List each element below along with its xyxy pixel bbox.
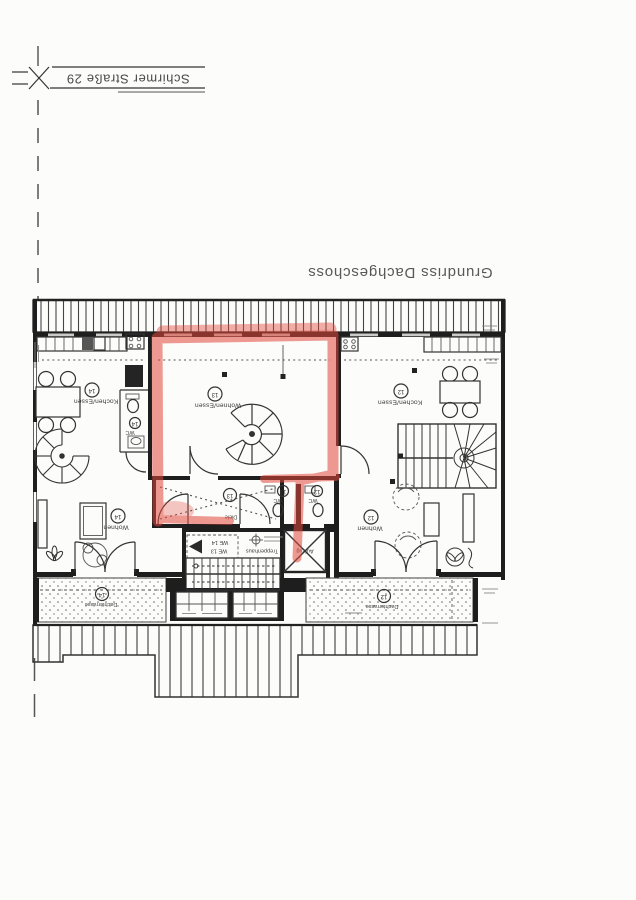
svg-text:Dachterrasse: Dachterrasse [366,603,399,609]
spiral-stair-13 [226,404,282,464]
stair-flights [186,558,280,590]
wohnen12-furniture [393,484,474,568]
apartment-14: 14 Kochen/Essen 14 [35,334,146,577]
svg-text:Kochen/Essen: Kochen/Essen [74,397,119,404]
svg-text:13: 13 [211,391,218,397]
skylight-b [233,592,278,618]
direction-arrow [189,540,202,554]
svg-text:Dachterrasse: Dachterrasse [85,601,118,607]
svg-text:13: 13 [279,488,286,494]
svg-text:14: 14 [114,513,121,519]
svg-text:Kochen/Essen: Kochen/Essen [378,398,423,405]
svg-text:WC: WC [308,497,317,503]
terrace-doors-14 [71,542,139,577]
skylight-a [176,592,228,618]
floor-plan: 14 Kochen/Essen 14 [33,300,505,697]
flower-symbol [45,546,64,562]
west-windows [34,362,37,522]
street-banner: Schirmer Straße 29 [12,46,205,92]
room-label-wohnen-14: 14 Wohnen [103,509,128,530]
terrace-doors-12 [371,541,441,577]
svg-text:Wohnen: Wohnen [103,523,128,530]
stove-12 [341,337,358,351]
unit-label-we13: WE 13 [211,548,228,554]
roof-hatch-bottom [33,625,477,697]
terrace-12: 12 Dachterrasse [306,578,473,622]
svg-text:13: 13 [226,492,233,498]
svg-text:Wohnen/Essen: Wohnen/Essen [195,401,242,408]
room-label-wohnen-essen-13: 13 Wohnen/Essen [195,387,242,408]
door-arc [126,452,146,472]
svg-text:14: 14 [98,591,105,597]
svg-text:Wohnen: Wohnen [357,524,382,531]
wc12-room: 12 WC [305,486,323,517]
scanned-floor-plan-page: Schirmer Straße 29 Grundriss Dachgeschos… [0,0,636,900]
winder-stair-12 [390,424,496,488]
apartment-13: 13 Wohnen/Essen [190,345,286,474]
stair-label: Treppenhaus [246,548,278,554]
svg-text:WC: WC [125,429,134,435]
dining-set-12 [440,367,480,418]
elevator: Aufzug [284,530,326,572]
room-label-wc-14: 14 WC [125,418,140,436]
wohnen14-furniture [38,500,107,567]
dining-set-14 [36,372,80,433]
fridge-14 [125,365,143,387]
wc13-room: 13 WC [265,486,289,517]
plan-title: Grundriss Dachgeschoss [307,264,492,281]
flower-symbol [446,548,473,568]
door-arc [341,446,369,474]
floor-plan-svg: Schirmer Straße 29 Grundriss Dachgeschos… [0,0,636,900]
svg-text:14: 14 [88,387,95,393]
small-post [222,372,227,377]
apartment-12: 12 Kochen/Essen [336,337,501,577]
svg-text:12: 12 [367,514,374,520]
street-label: Schirmer Straße 29 [66,72,190,87]
unit-label-we14: WE 14 [212,539,229,545]
svg-text:14: 14 [131,420,138,426]
terrace-14: 14 Dachterrasse [37,578,166,622]
room-label-wohnen-12: 12 Wohnen [357,510,382,531]
street-x-marker [29,46,49,89]
door-arc [240,494,270,524]
svg-text:12: 12 [380,593,387,599]
svg-text:WC: WC [273,497,282,503]
spiral-stair-14 [35,429,89,483]
door-arc [190,446,218,474]
svg-text:12: 12 [397,388,404,394]
svg-text:12: 12 [313,488,320,494]
level-marker [249,534,263,547]
room-label-kochen-essen-12: 12 Kochen/Essen [378,384,423,405]
room-label-diele-13: 13 Diele [224,489,238,520]
